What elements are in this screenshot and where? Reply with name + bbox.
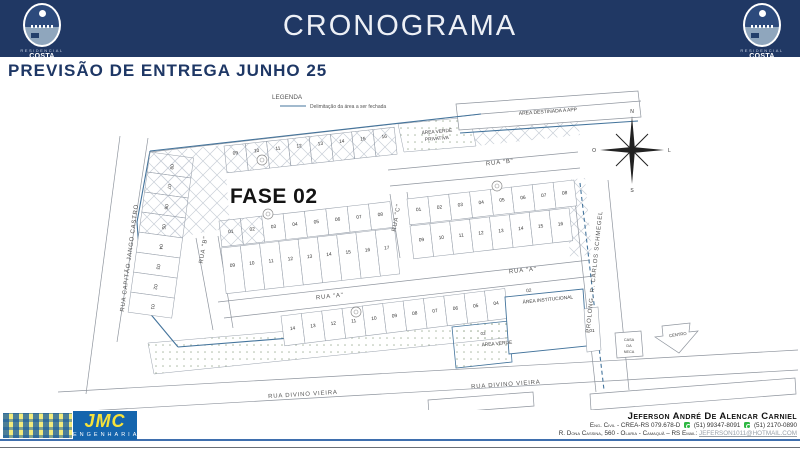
street-rua-b: RUA "B": [486, 158, 514, 167]
lot-number: 17: [384, 245, 390, 252]
email-label: Email:: [682, 430, 697, 437]
lot-cell: [288, 137, 312, 166]
lot-cell: [330, 132, 354, 161]
lot-number: 13: [310, 323, 316, 330]
lot-number: 08: [377, 212, 383, 219]
engineer-address-line: R. Dona Cassina, 560 - Olaria - Camaquã …: [559, 430, 797, 438]
compass-west: O: [592, 148, 596, 154]
lot-number: 11: [268, 258, 274, 265]
lot-number: 14: [326, 251, 332, 258]
lot-number: 13: [318, 141, 324, 148]
lot-number: 15: [345, 249, 351, 256]
lot-number: 16: [364, 247, 370, 254]
email-link[interactable]: JEFERSON1011@HOTMAIL.COM: [699, 430, 797, 437]
legend-title: LEGENDA: [272, 94, 303, 101]
lot-number: 10: [371, 315, 377, 322]
street-line: [608, 180, 629, 390]
casa-label-1: CASA: [624, 338, 635, 342]
lot-number: 11: [275, 146, 281, 153]
lot-number: 02: [249, 226, 255, 233]
lot-number: 10: [438, 235, 444, 242]
lot-number: 10: [249, 260, 255, 267]
lot-number: 06: [335, 216, 341, 223]
whatsapp-icon: [684, 422, 690, 428]
lot-number: 12: [478, 230, 484, 237]
lot-number: 12: [296, 143, 302, 150]
crea-label: Eng. Civil - CREA-RS 079.678-D: [590, 422, 680, 429]
survey-marker-icon: [351, 307, 361, 317]
lot-cell: [245, 141, 269, 170]
lot-number: 08: [412, 310, 418, 317]
institutional-lot-number: 02: [526, 288, 532, 295]
lot-number: 05: [499, 197, 505, 204]
lot-cell: [309, 134, 333, 163]
lot-cell: [373, 127, 397, 156]
far-lot-outline: [590, 378, 796, 410]
street-rua-c: RUA "C": [392, 203, 403, 232]
lot-number: 08: [562, 190, 568, 197]
lot-number: 07: [541, 192, 547, 199]
jmc-logo-mosaic: [3, 413, 72, 438]
lot-number: 09: [230, 262, 236, 269]
phone-2: (51) 2170-0890: [754, 422, 797, 429]
lot-number: 04: [493, 300, 499, 307]
lot-number: 09: [391, 313, 397, 320]
lot-number: 02: [436, 204, 442, 211]
footer: JMC ENGENHARIA Jeferson André De Alencar…: [0, 410, 800, 449]
street-line: [86, 136, 120, 394]
street-rua-b-vertical: RUA "B": [199, 236, 210, 264]
jmc-company-label: ENGENHARIA: [73, 431, 137, 439]
street-divino-vieira-right: RUA DIVINO VIEIRA: [471, 380, 541, 391]
green-area-number: 03: [480, 331, 486, 336]
fase-02-label: FASE 02: [230, 185, 318, 208]
site-plan-map: LEGENDA Delimitação da área a ser fechad…: [0, 0, 800, 449]
casa-label-3: NECA: [624, 350, 635, 354]
lot-number: 06: [520, 195, 526, 202]
lot-number: 01: [416, 207, 422, 214]
lot-number: 14: [518, 226, 524, 233]
lot-number: 06: [452, 305, 458, 312]
casa-label-2: DA: [626, 344, 632, 348]
engineer-info: Jeferson André De Alencar Carniel Eng. C…: [559, 412, 797, 437]
phone-icon: [744, 422, 750, 428]
lot-number: 09: [232, 150, 238, 157]
lot-number: 15: [538, 223, 544, 230]
engineer-name: Jeferson André De Alencar Carniel: [559, 412, 797, 422]
lot-number: 16: [558, 221, 564, 228]
lot-number: 13: [307, 254, 313, 261]
compass-east: L: [668, 148, 671, 154]
lot-number: 03: [457, 202, 463, 209]
street-rua-a-left: RUA "A": [316, 293, 344, 302]
compass-north: N: [630, 109, 634, 115]
street-rua-a-right: RUA "A": [509, 267, 537, 276]
slide-bottom-edge: [0, 447, 800, 448]
lot-cell: [267, 139, 291, 168]
lot-cell: [352, 130, 376, 159]
lot-number: 03: [271, 224, 277, 231]
jmc-logo-text: JMC: [73, 411, 137, 431]
lot-number: 07: [356, 214, 362, 221]
compass-rose-icon: N S L O: [592, 109, 671, 194]
lot-number: 07: [432, 308, 438, 315]
compass-south: S: [630, 188, 634, 194]
phone-1: (51) 99347-8091: [694, 422, 741, 429]
engineer-credentials: Eng. Civil - CREA-RS 079.678-D (51) 9934…: [559, 422, 797, 430]
lot-number: 15: [360, 136, 366, 143]
lot-number: 14: [290, 325, 296, 332]
lot-number: 12: [287, 256, 293, 263]
jmc-engenharia-logo: JMC ENGENHARIA: [73, 411, 137, 440]
lot-number: 12: [330, 320, 336, 327]
lot-number: 16: [381, 134, 387, 141]
lot-cell: [224, 144, 248, 173]
lot-number: 04: [478, 200, 484, 207]
survey-marker-icon: [263, 209, 273, 219]
survey-marker-icon: [257, 155, 267, 165]
lot-number: 05: [313, 219, 319, 226]
street-line: [388, 152, 578, 170]
lot-number: 11: [458, 232, 464, 239]
address: R. Dona Cassina, 560 - Olaria - Camaquã …: [559, 430, 681, 437]
lot-number: 09: [418, 237, 424, 244]
lot-number: 04: [292, 221, 298, 228]
lot-number: 14: [339, 138, 345, 145]
lot-number: 10: [254, 148, 260, 155]
legend-item-label: Delimitação da área a ser fechada: [310, 104, 386, 110]
lot-number: 05: [473, 303, 479, 310]
centro-arrow-icon: [655, 323, 698, 353]
survey-marker-icon: [492, 181, 502, 191]
lot-number: 01: [228, 229, 234, 236]
lot-number: 13: [498, 228, 504, 235]
